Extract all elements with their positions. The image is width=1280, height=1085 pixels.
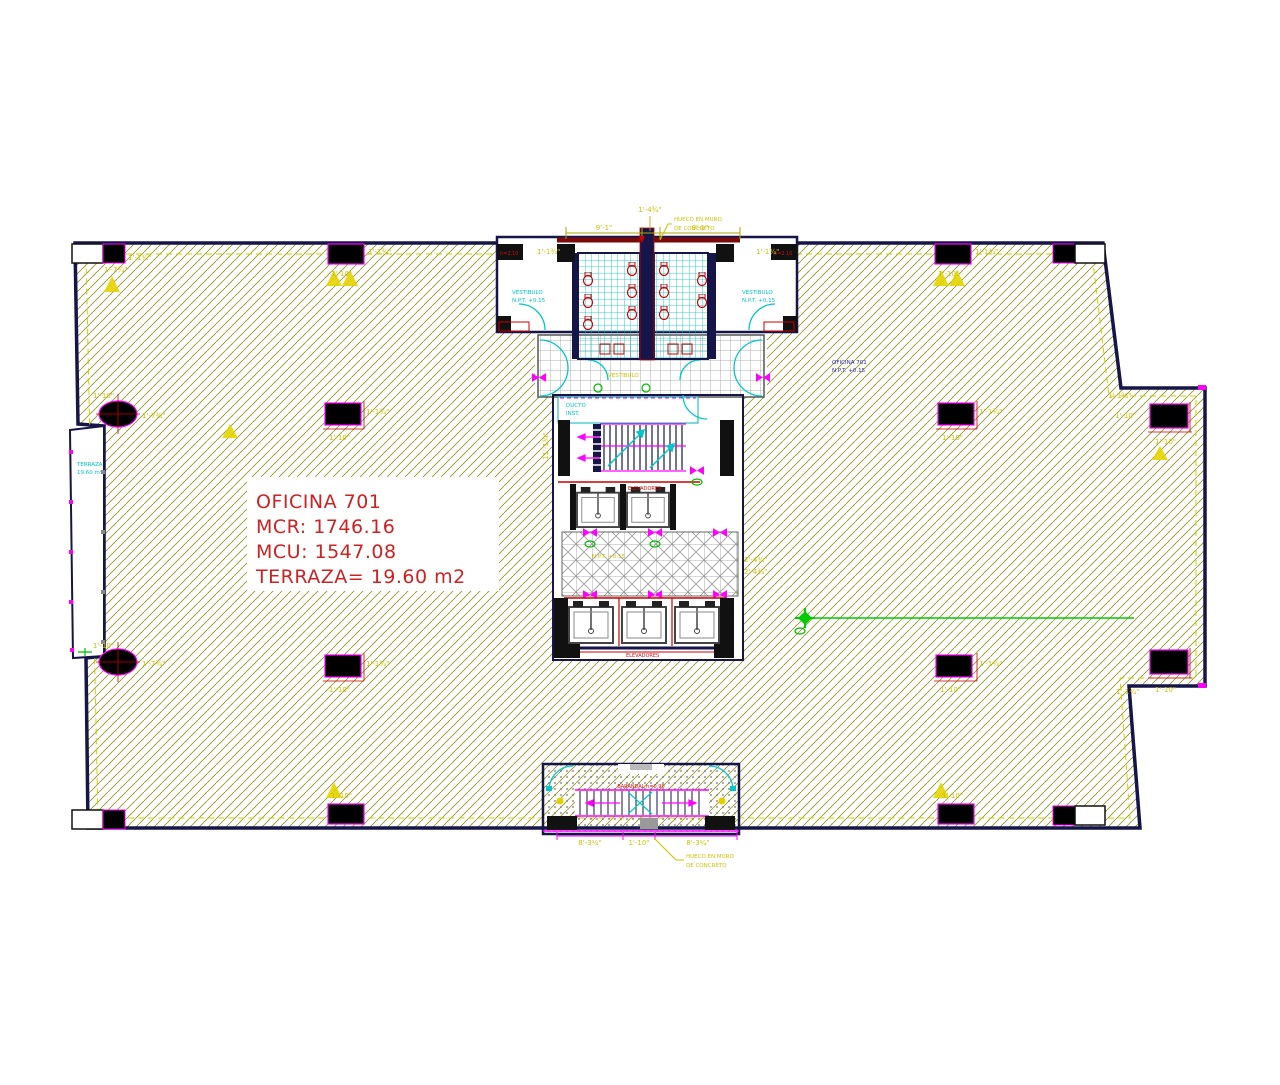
elevator-lobby: N.P.T. +0.15 [562,528,738,599]
bottom-dim-left: 8'-3¼" [578,839,601,847]
dim-label: 1'-10" [940,686,961,694]
mcu-value-label: MCU: 1547.08 [256,541,397,563]
wall-height-label: h=2.10 [500,251,519,257]
dim-label: 1'-7¾" [104,266,127,274]
column [325,403,361,425]
column [328,244,364,264]
column [1053,244,1075,263]
terrace-sun-mark [719,798,726,805]
dim-label: 1'-1¾" [979,660,1002,668]
column [938,804,974,824]
dim-label: 1'-1¾" [1108,392,1131,400]
lobby-label: N.P.T. +0.15 [592,554,626,560]
hueco-bottom-label-2: DE CONCRETO [686,863,727,869]
column [328,804,364,824]
elevator-car [577,487,619,527]
dim-label: 1'-1¾" [537,248,560,256]
window-frame [1075,244,1105,263]
dim-label: 1'-10" [1155,438,1176,446]
floor-plan-svg: TERRAZA 19.60 m² VESTIBULO [0,0,1280,1080]
dim-label: 1'-10" [938,270,959,278]
dim-label: 1'-10" [331,792,352,800]
mcr-value-label: MCR: 1746.16 [256,516,395,538]
window-frame [1075,806,1105,825]
duct-room-label-1: DUCTO [566,403,586,409]
column [1150,650,1188,674]
title-block: OFICINA 701 MCR: 1746.16 MCU: 1547.08 TE… [247,477,499,591]
lower-elevators-label: ELEVADORES [626,653,659,659]
core-dim: 2'-4¾" [744,556,767,564]
dim-label: 1'-10" [329,434,350,442]
bottom-dimension: 8'-3¼" 1'-10" 8'-3¼" HUECO EN MURO DE CO… [557,832,737,869]
top-dim-center: 1'-4¾" [638,206,661,214]
elevator-car [627,487,669,527]
column [103,244,125,263]
dim-label: 1'-10" [93,642,114,650]
dim-label: 1'-1¾" [979,408,1002,416]
column [935,244,971,264]
hueco-top-label-1: HUECO EN MURO [674,217,722,223]
bottom-terrace: BARANDAL h=0.90 8'-3¼" 1'-10" 8'-3¼" HUE… [543,764,739,869]
dim-label: 1'-10" [331,270,352,278]
elevator-car [569,601,613,643]
column [103,810,125,829]
bath-corner-stub-right [716,244,734,262]
hueco-top-label-2: DE CONCRETO [674,226,715,232]
floor-plan-page: TERRAZA 19.60 m² VESTIBULO [0,0,1280,1080]
bath-divider-wall [640,228,654,360]
terrace-sun-mark [557,798,564,805]
dim-label: 1'-1¾" [1116,688,1139,696]
terraza-area-label: TERRAZA= 19.60 m2 [255,566,466,588]
column [936,655,972,677]
office-number-label: OFICINA 701 [256,491,381,513]
dim-label: 1'-10" [329,686,350,694]
left-terrace-label-1: TERRAZA [76,462,103,468]
bump-accent-top [1198,385,1206,390]
vestibule-right-label-1: VESTIBULO [742,290,773,296]
bath-left-wall [572,253,578,359]
office-area-label-2: N.P.T. +0.15 [832,368,866,374]
bump-accent-bottom [1198,683,1206,688]
duct-room-label-2: INST. [566,411,580,417]
hueco-bottom-label-1: HUECO EN MURO [686,854,734,860]
dim-label: 1'-1¾" [975,248,998,256]
bottom-dim-right: 8'-3¼" [686,839,709,847]
window-frame [72,244,103,263]
dim-label: 1'-10" [942,792,963,800]
column [938,403,974,425]
dim-label: 1'-10" [1155,686,1176,694]
upper-elevators-label: ELEVADORES [628,486,661,492]
window-frame [72,810,103,829]
vestibule-left-label-2: N.P.T. +0.15 [512,298,546,304]
bottom-dim-center: 1'-10" [628,839,649,847]
office-area-label-1: OFICINA 701 [832,360,867,366]
duct-room [558,397,698,423]
dim-label: 1'-7¾" [142,412,165,420]
bath-right-wall [708,253,716,359]
dim-label: 1'-1¾" [366,660,389,668]
dim-label: 1'-10" [1115,412,1136,420]
vestibule-right-label-2: N.P.T. +0.15 [742,298,776,304]
column [325,655,361,677]
dim-label: 1'-1¾" [368,248,391,256]
vestibule-left-label-1: VESTIBULO [512,290,543,296]
column [1053,806,1075,825]
top-dim-left: 9'-1" [596,224,613,232]
dim-label: 1'-1¾" [756,248,779,256]
core-dim: 2'-4¾" [744,568,767,576]
elevator-car [675,601,719,643]
terrace-rail-label: BARANDAL h=0.90 [617,784,664,790]
dim-label: 1'-10" [942,434,963,442]
column [1150,404,1188,428]
dim-label: 1'-1¾" [128,254,151,262]
core-dim: 11'-1¾" [542,432,550,460]
dim-label: 1'-1¾" [366,408,389,416]
dim-label: 1'-10" [93,392,114,400]
corridor-label: VESTIBULO [608,373,639,379]
left-terrace-floor [70,426,104,658]
dim-label: 1'-7¾" [142,660,165,668]
elevator-car [622,601,666,643]
left-terrace-label-2: 19.60 m² [77,469,102,476]
left-terrace: TERRAZA 19.60 m² [69,426,105,658]
